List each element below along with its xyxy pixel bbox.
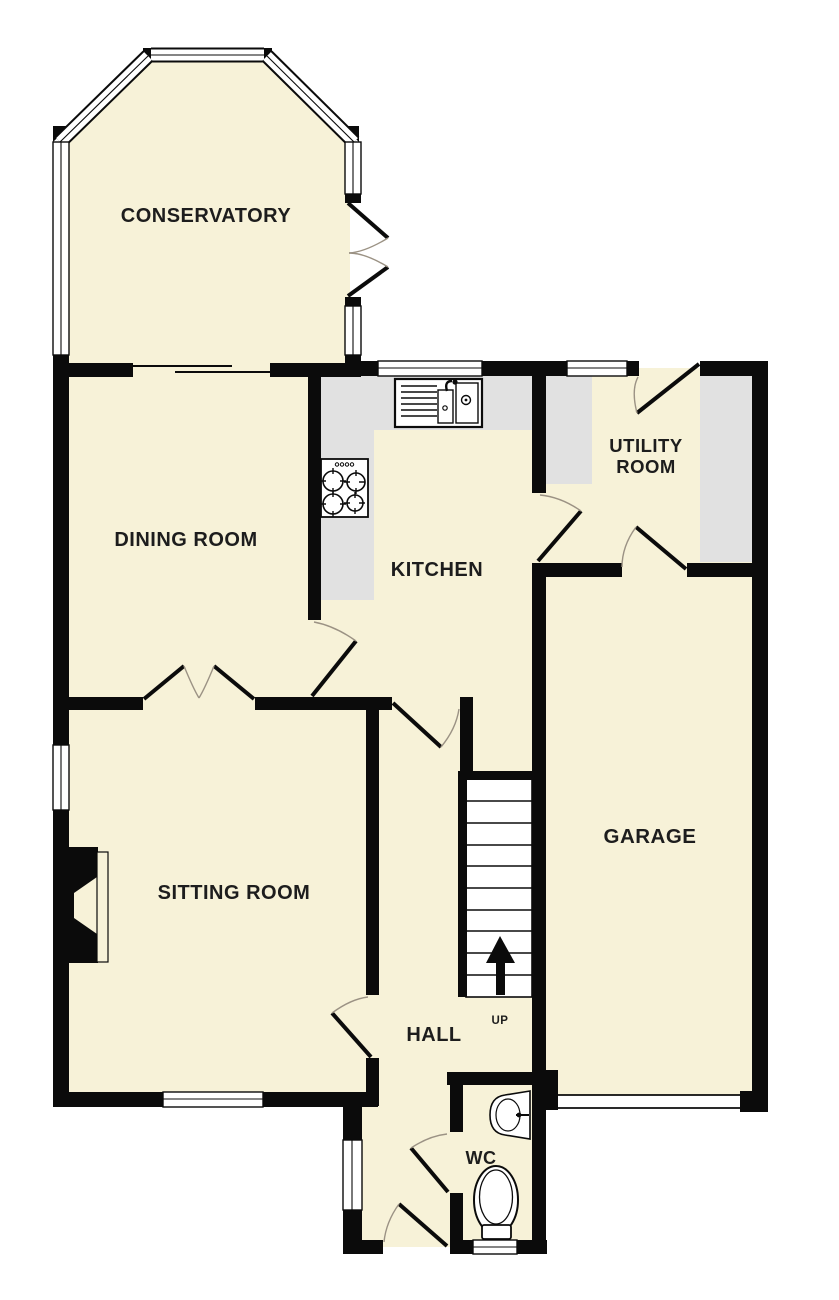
wall-segment <box>532 563 546 1253</box>
dining-room-label: DINING ROOM <box>114 529 257 551</box>
wall-segment <box>53 363 133 377</box>
wall-segment <box>450 1240 473 1254</box>
wall-segment <box>537 1070 558 1110</box>
window <box>567 361 627 376</box>
utility-counter-right <box>700 376 753 562</box>
wall-segment <box>366 703 379 995</box>
hearth <box>97 852 108 962</box>
wall-segment <box>343 1092 362 1140</box>
sink-fixture <box>395 379 482 427</box>
window <box>53 142 69 355</box>
window <box>378 361 482 376</box>
floor-plan-canvas: CONSERVATORY DINING ROOM KITCHEN UTILITY… <box>0 0 839 1300</box>
wall-segment <box>752 361 768 1110</box>
wall-segment <box>308 370 321 620</box>
utility-counter-left <box>546 376 592 484</box>
wall-segment <box>450 1193 463 1240</box>
up-label: UP <box>492 1015 509 1027</box>
sitting-room-label: SITTING ROOM <box>158 882 311 904</box>
staircase <box>466 779 532 997</box>
up-arrow-shaft <box>496 958 505 995</box>
wall-segment <box>740 1091 768 1112</box>
stove-fixture <box>320 459 368 517</box>
window <box>53 745 69 810</box>
wall-segment <box>460 697 473 773</box>
garage-label: GARAGE <box>604 825 697 848</box>
wall-segment <box>345 361 378 376</box>
garage-door-opening <box>558 1095 740 1108</box>
basin-fixture <box>490 1091 530 1139</box>
utility-room-label-line1: UTILITY <box>609 435 683 456</box>
wall-segment <box>53 1092 163 1107</box>
door-swing-arc <box>349 238 388 253</box>
wall-segment <box>343 1240 383 1254</box>
wall-segment <box>537 563 622 577</box>
room-floors <box>62 55 755 1247</box>
door-leaf <box>348 203 388 238</box>
wall-segment <box>345 194 361 203</box>
wall-segment <box>532 361 546 493</box>
conservatory-label: CONSERVATORY <box>121 205 292 227</box>
wall-segment <box>450 1085 463 1132</box>
fireplace <box>63 847 108 963</box>
utility-room-label-line2: ROOM <box>616 456 676 477</box>
wall-segment <box>482 361 567 376</box>
window <box>473 1240 517 1254</box>
door-swing-arc <box>349 253 388 267</box>
window <box>345 142 361 194</box>
floor-plan: CONSERVATORY DINING ROOM KITCHEN UTILITY… <box>0 0 839 1300</box>
window <box>345 306 361 355</box>
kitchen-label: KITCHEN <box>391 559 483 581</box>
wall-segment <box>458 771 467 997</box>
wall-segment <box>517 1240 547 1254</box>
wall-segment <box>458 771 541 780</box>
door-leaf <box>348 267 388 296</box>
wall-segment <box>687 563 753 577</box>
window <box>343 1140 362 1210</box>
window <box>163 1092 263 1107</box>
wc-label: WC <box>466 1148 497 1168</box>
wall-segment <box>53 697 143 710</box>
wall-segment <box>345 297 361 306</box>
wall-segment <box>627 361 639 376</box>
wall-segment <box>447 1072 546 1085</box>
hall-label: HALL <box>406 1024 461 1046</box>
wall-segment <box>53 363 69 710</box>
